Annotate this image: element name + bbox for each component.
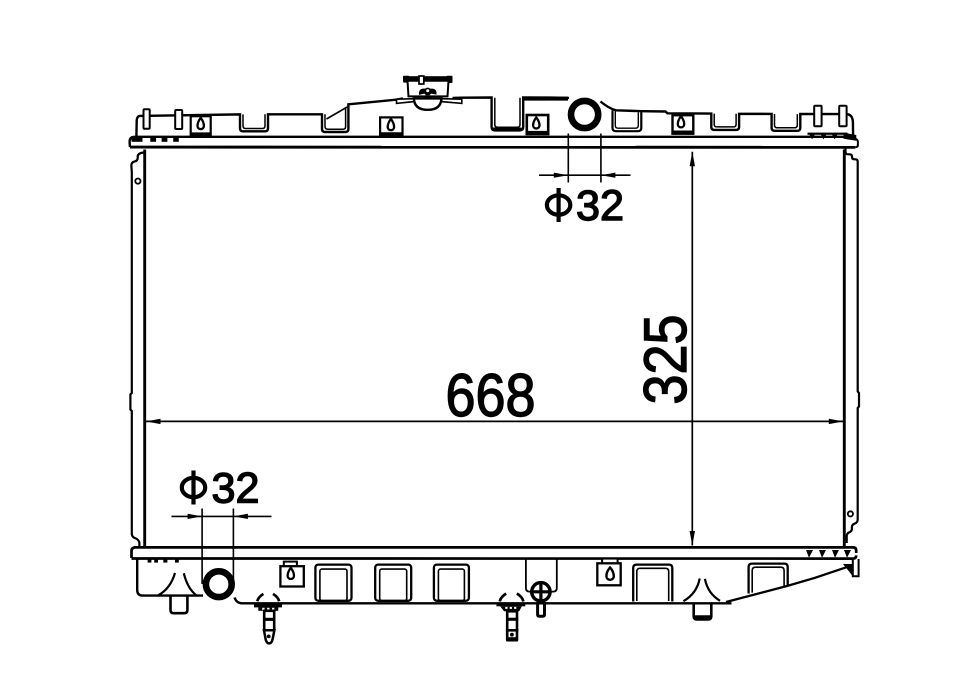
svg-text:32: 32 <box>212 465 260 513</box>
svg-text:32: 32 <box>576 182 624 230</box>
svg-text:325: 325 <box>632 315 699 405</box>
svg-text:668: 668 <box>446 362 536 429</box>
